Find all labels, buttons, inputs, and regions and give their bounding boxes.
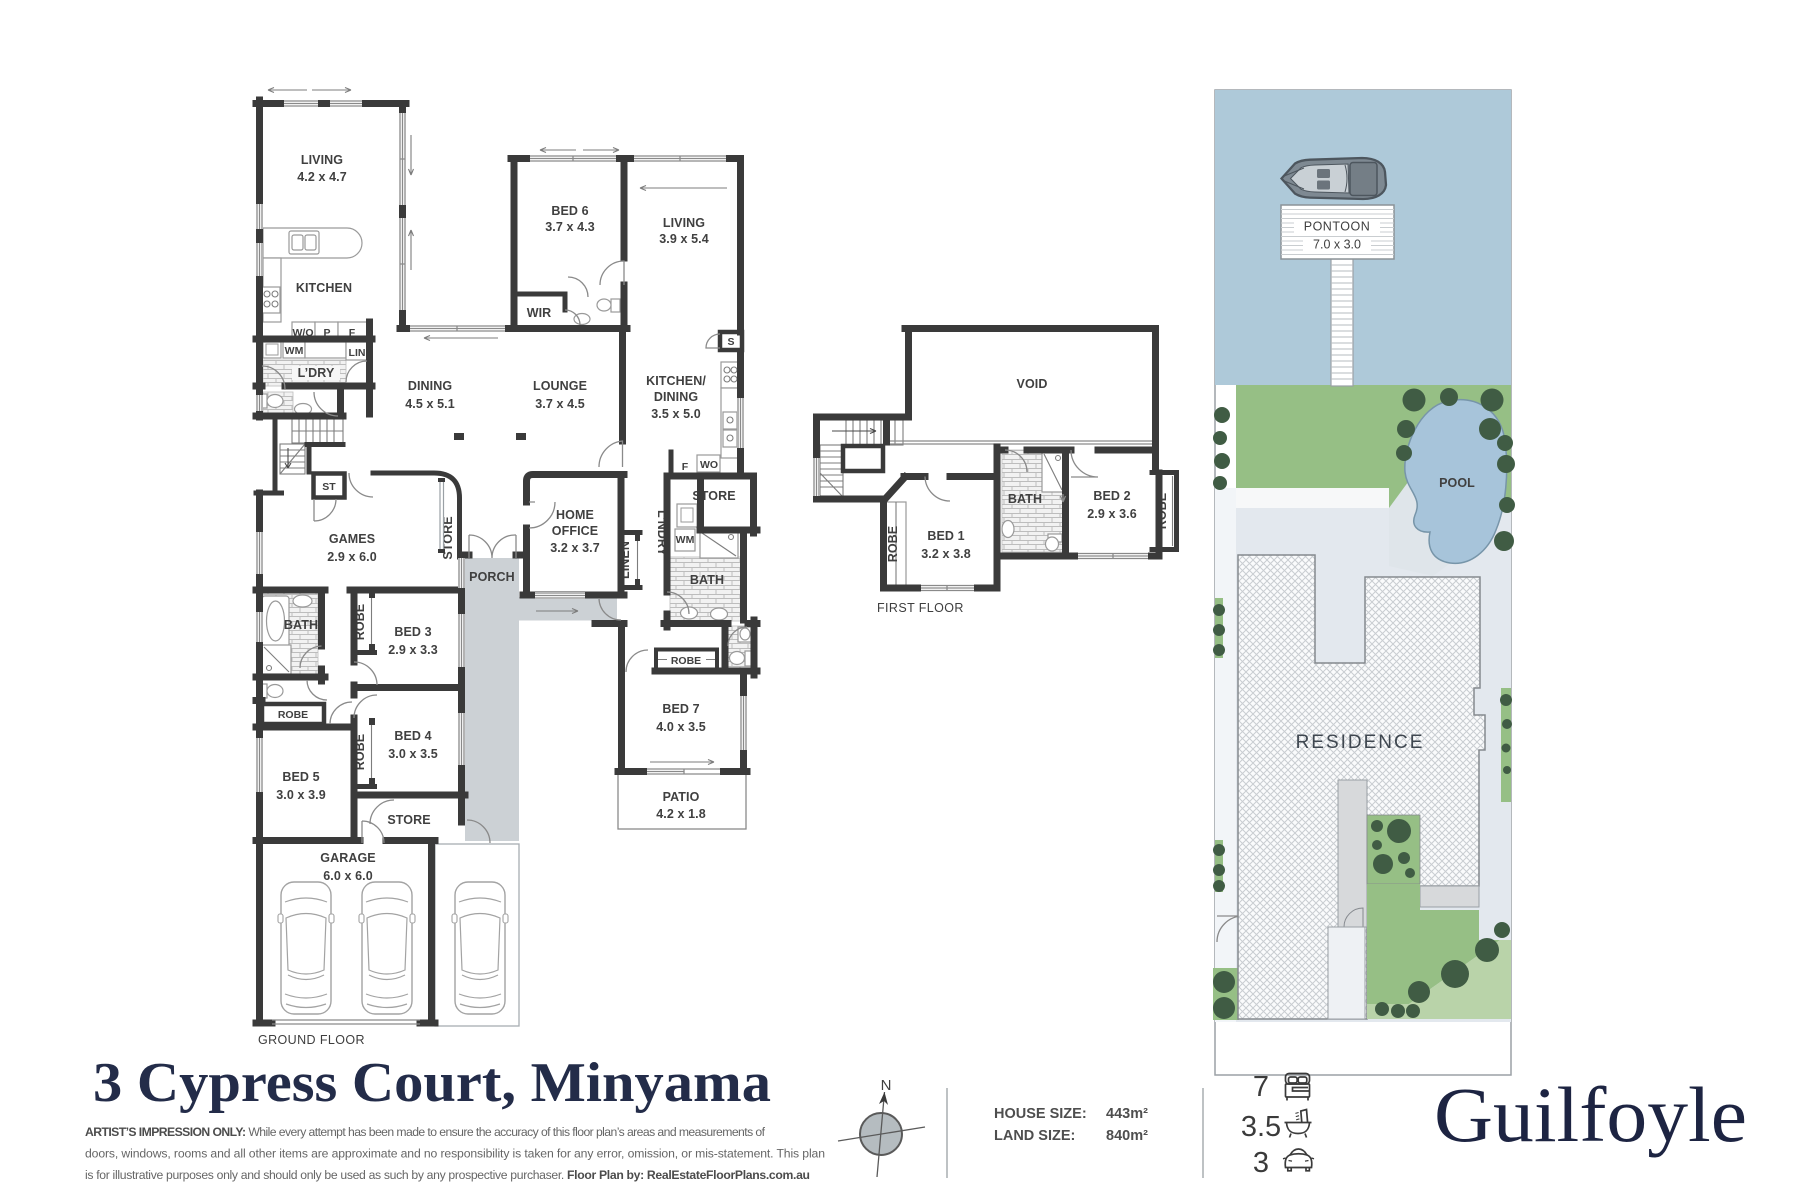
svg-text:7: 7 (1253, 1071, 1269, 1103)
svg-text:VOID: VOID (1017, 377, 1048, 391)
svg-text:LIN: LIN (349, 347, 366, 359)
svg-text:3.2 x 3.7: 3.2 x 3.7 (550, 541, 600, 555)
svg-text:6.0 x 6.0: 6.0 x 6.0 (323, 869, 373, 883)
svg-text:ARTIST’S IMPRESSION ONLY: Whil: ARTIST’S IMPRESSION ONLY: While every at… (85, 1125, 766, 1139)
svg-text:840m²: 840m² (1106, 1128, 1148, 1144)
svg-text:OFFICE: OFFICE (552, 524, 598, 538)
svg-text:LIVING: LIVING (663, 216, 705, 230)
svg-text:2.9 x 3.6: 2.9 x 3.6 (1087, 507, 1137, 521)
svg-text:DINING: DINING (408, 379, 452, 393)
svg-text:RESIDENCE: RESIDENCE (1296, 732, 1425, 753)
svg-text:BED 6: BED 6 (551, 204, 588, 218)
svg-text:3.0 x 3.5: 3.0 x 3.5 (388, 747, 438, 761)
svg-text:PONTOON: PONTOON (1304, 220, 1370, 234)
svg-text:LOUNGE: LOUNGE (533, 379, 587, 393)
svg-text:F: F (682, 461, 689, 473)
svg-text:DINING: DINING (654, 390, 698, 404)
svg-text:STORE: STORE (387, 813, 430, 827)
svg-text:BATH: BATH (1008, 492, 1042, 506)
svg-text:BED 7: BED 7 (662, 702, 699, 716)
svg-text:WO: WO (700, 459, 718, 471)
svg-text:BED 3: BED 3 (394, 625, 431, 639)
svg-text:3.2 x 3.8: 3.2 x 3.8 (921, 547, 971, 561)
svg-text:is for illustrative purposes o: is for illustrative purposes only and sh… (85, 1168, 810, 1182)
svg-text:443m²: 443m² (1106, 1106, 1148, 1122)
svg-text:S: S (727, 336, 734, 348)
svg-text:N: N (881, 1077, 892, 1094)
svg-text:FIRST FLOOR: FIRST FLOOR (877, 601, 964, 615)
svg-text:ROBE: ROBE (886, 526, 900, 563)
svg-text:4.2 x 1.8: 4.2 x 1.8 (656, 807, 706, 821)
svg-text:3.5: 3.5 (1241, 1111, 1281, 1143)
svg-text:WM: WM (285, 345, 304, 357)
svg-text:4.0 x 3.5: 4.0 x 3.5 (656, 720, 706, 734)
svg-text:BED 5: BED 5 (282, 770, 319, 784)
svg-text:3.0 x 3.9: 3.0 x 3.9 (276, 788, 326, 802)
svg-text:KITCHEN/: KITCHEN/ (646, 374, 706, 388)
svg-text:3: 3 (1253, 1147, 1269, 1179)
svg-text:GAMES: GAMES (329, 532, 375, 546)
svg-text:PATIO: PATIO (663, 790, 700, 804)
svg-text:LIVING: LIVING (301, 153, 343, 167)
svg-text:3.7 x 4.5: 3.7 x 4.5 (535, 397, 585, 411)
svg-text:Guilfoyle: Guilfoyle (1434, 1071, 1747, 1158)
svg-text:3.5 x 5.0: 3.5 x 5.0 (651, 407, 701, 421)
svg-text:7.0 x 3.0: 7.0 x 3.0 (1313, 238, 1361, 252)
svg-text:ROBE: ROBE (671, 655, 701, 667)
svg-text:GROUND FLOOR: GROUND FLOOR (258, 1033, 365, 1047)
svg-text:doors, windows, rooms and all: doors, windows, rooms and all other item… (85, 1147, 825, 1161)
svg-text:ST: ST (322, 481, 336, 493)
svg-text:HOME: HOME (556, 508, 594, 522)
svg-text:3.7 x 4.3: 3.7 x 4.3 (545, 220, 595, 234)
svg-text:POOL: POOL (1439, 476, 1475, 490)
svg-text:ROBE: ROBE (278, 709, 308, 721)
svg-text:GARAGE: GARAGE (320, 851, 375, 865)
svg-text:BED 1: BED 1 (927, 529, 964, 543)
svg-text:4.5 x 5.1: 4.5 x 5.1 (405, 397, 455, 411)
svg-text:WIR: WIR (527, 306, 552, 320)
svg-text:WM: WM (676, 534, 695, 546)
svg-text:2.9 x 6.0: 2.9 x 6.0 (327, 550, 377, 564)
svg-text:BED 2: BED 2 (1093, 489, 1130, 503)
svg-text:LAND SIZE:: LAND SIZE: (994, 1128, 1075, 1144)
svg-text:PORCH: PORCH (469, 570, 515, 584)
svg-text:L’DRY: L’DRY (298, 366, 335, 380)
svg-text:3.9 x 5.4: 3.9 x 5.4 (659, 232, 709, 246)
svg-text:2.9 x 3.3: 2.9 x 3.3 (388, 643, 438, 657)
svg-text:BED 4: BED 4 (394, 729, 431, 743)
svg-text:4.2 x 4.7: 4.2 x 4.7 (297, 170, 347, 184)
svg-text:KITCHEN: KITCHEN (296, 281, 352, 295)
svg-text:BATH: BATH (284, 618, 318, 632)
svg-text:3 Cypress Court, Minyama: 3 Cypress Court, Minyama (93, 1052, 771, 1114)
svg-text:BATH: BATH (690, 573, 724, 587)
svg-text:HOUSE SIZE:: HOUSE SIZE: (994, 1106, 1087, 1122)
